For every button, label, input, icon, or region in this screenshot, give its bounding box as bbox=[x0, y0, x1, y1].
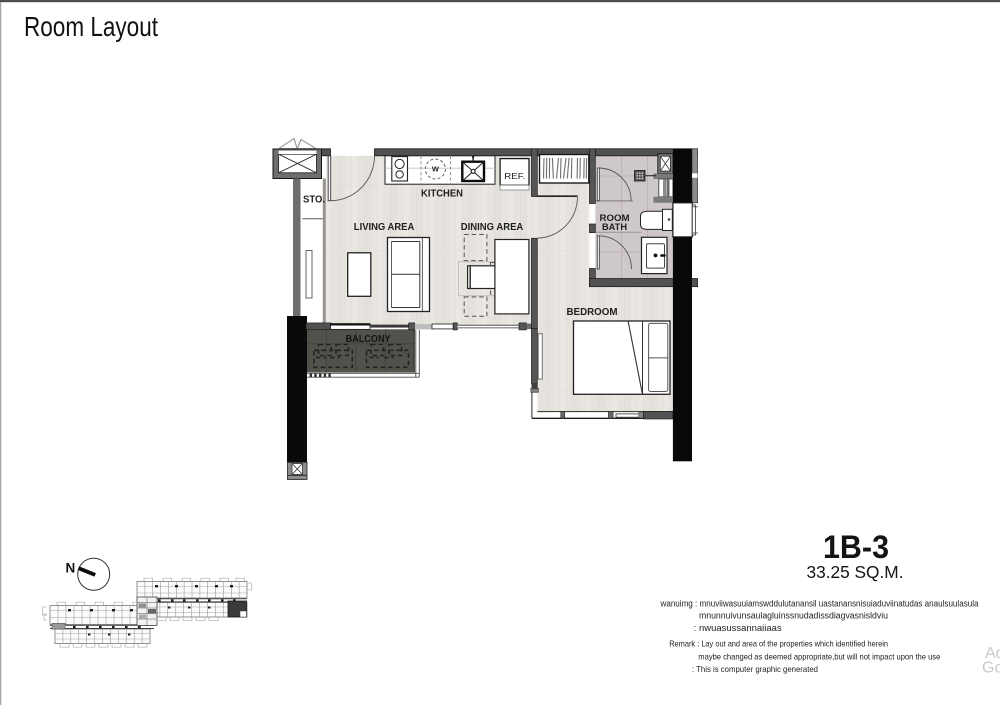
svg-text:N: N bbox=[66, 561, 76, 576]
svg-text:W: W bbox=[432, 165, 440, 174]
svg-text:REF.: REF. bbox=[504, 171, 525, 181]
svg-text:BALCONY: BALCONY bbox=[346, 333, 391, 345]
svg-text:Go: Go bbox=[982, 660, 1000, 677]
svg-text:: nwuasussannaiiaas: : nwuasussannaiiaas bbox=[694, 623, 783, 633]
svg-text:BATH: BATH bbox=[602, 222, 627, 232]
svg-text:33.25 SQ.M.: 33.25 SQ.M. bbox=[807, 562, 904, 582]
svg-text:Remark : Lay out and area of t: Remark : Lay out and area of the propert… bbox=[669, 639, 888, 649]
svg-text:KITCHEN: KITCHEN bbox=[421, 187, 463, 199]
svg-text:: This is computer graphic gen: : This is computer graphic generated bbox=[692, 664, 818, 674]
svg-text:Room Layout: Room Layout bbox=[24, 11, 158, 42]
svg-text:LIVING AREA: LIVING AREA bbox=[354, 222, 415, 233]
svg-text:1B-3: 1B-3 bbox=[823, 529, 889, 565]
svg-text:mnunnuivunsaulagluinssnudadiss: mnunnuivunsaulagluinssnudadissdiagvasnis… bbox=[699, 610, 888, 620]
svg-text:DINING AREA: DINING AREA bbox=[461, 222, 524, 233]
svg-text:wanuimg : mnuviiwasuuiamswddul: wanuimg : mnuviiwasuuiamswddulutanansil … bbox=[660, 599, 979, 609]
svg-text:STO.: STO. bbox=[303, 195, 325, 206]
svg-text:BEDROOM: BEDROOM bbox=[567, 307, 618, 318]
svg-text:maybe changed as deemed approp: maybe changed as deemed appropriate,but … bbox=[698, 652, 940, 662]
